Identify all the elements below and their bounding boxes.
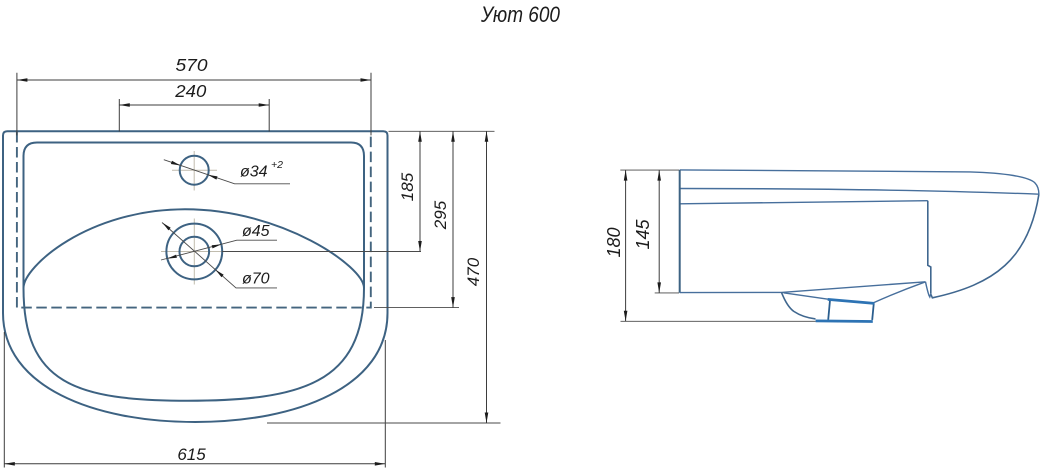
svg-text:ø70: ø70 bbox=[242, 271, 270, 288]
svg-text:240: 240 bbox=[174, 81, 206, 101]
svg-text:145: 145 bbox=[633, 219, 653, 250]
svg-text:470: 470 bbox=[464, 257, 483, 286]
svg-text:+2: +2 bbox=[271, 159, 283, 171]
svg-text:185: 185 bbox=[398, 172, 417, 201]
svg-text:ø34: ø34 bbox=[240, 164, 268, 181]
svg-text:180: 180 bbox=[604, 227, 624, 257]
svg-text:295: 295 bbox=[431, 200, 450, 230]
svg-text:615: 615 bbox=[177, 445, 206, 464]
svg-text:570: 570 bbox=[176, 55, 208, 75]
svg-text:ø45: ø45 bbox=[242, 223, 270, 240]
svg-text:Уют 600: Уют 600 bbox=[480, 2, 560, 27]
